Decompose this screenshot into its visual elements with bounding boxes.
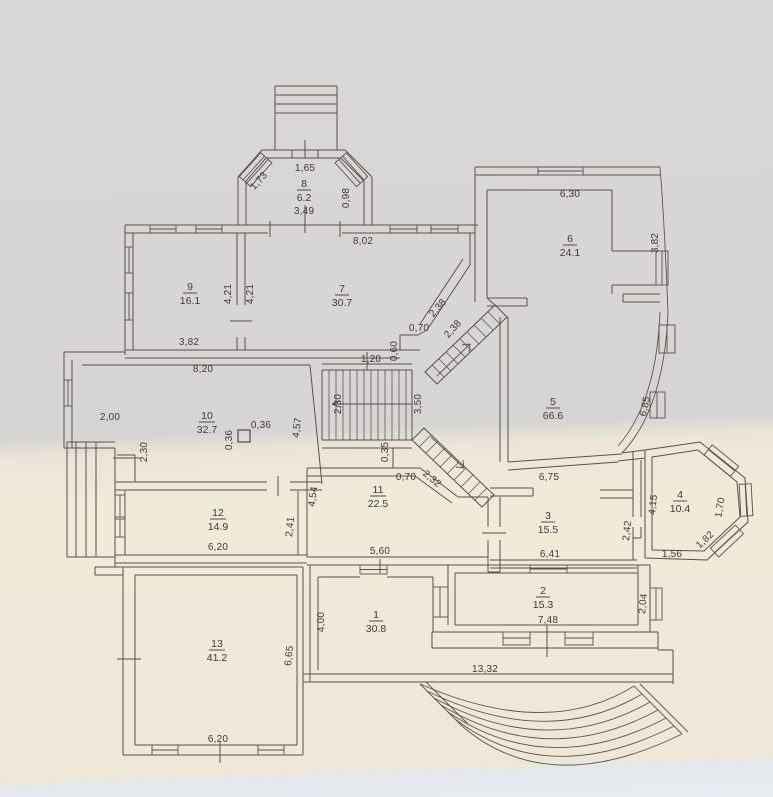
- entry-stair-walls: [275, 86, 337, 150]
- room-number: 6: [567, 233, 573, 245]
- dim-r11-left: 4,54: [307, 486, 321, 508]
- dim-r3-bottom: 6,41: [540, 549, 561, 560]
- room-area: 30.8: [366, 623, 387, 635]
- room-number: 13: [211, 638, 223, 650]
- dim-stair-w: 1,20: [361, 354, 382, 365]
- window-icon: [503, 632, 530, 645]
- room-area: 30.7: [332, 297, 353, 309]
- north-walls: [125, 221, 478, 355]
- room-area: 6.2: [297, 192, 312, 204]
- room-area: 15.3: [533, 599, 554, 611]
- room-label-8: 86.2: [297, 178, 312, 204]
- window-icon: [150, 225, 176, 233]
- room-label-7: 730.7: [332, 283, 353, 309]
- dim-r4-diag: 1,82: [694, 529, 716, 551]
- west-steps: [67, 442, 115, 557]
- column-0-36: [238, 430, 250, 442]
- window-icon: [64, 380, 72, 406]
- dim-col-h: 0,36: [224, 430, 235, 451]
- window-icon: [565, 632, 593, 645]
- room-area: 22.5: [368, 498, 389, 510]
- window-icon: [650, 392, 665, 418]
- dim-r1-left: 4,00: [316, 612, 327, 633]
- window-icon: [125, 293, 133, 320]
- room-number: 4: [677, 489, 683, 501]
- room-number: 8: [301, 178, 307, 190]
- dim-r2-bottom: 7,48: [538, 615, 559, 626]
- window-icon: [650, 588, 662, 620]
- dim-r6-top: 6,30: [560, 189, 581, 200]
- dim-r4-bottom: 1,56: [662, 549, 683, 560]
- window-icon: [538, 167, 583, 175]
- window-icon: [431, 225, 458, 233]
- dim-r12-bottom: 6,20: [208, 542, 229, 553]
- room-area: 66.6: [543, 410, 564, 422]
- room13-walls: [95, 567, 303, 763]
- dim-r4-right: 1,70: [713, 496, 727, 518]
- room-label-4: 410.4: [670, 489, 691, 515]
- dim-wall34: 2,42: [621, 520, 634, 542]
- dim-flight-c: 2,32: [420, 468, 443, 490]
- dim-stair-r: 3,50: [413, 394, 424, 415]
- dim-r7-top: 8,02: [353, 236, 374, 247]
- room-number: 10: [201, 410, 213, 422]
- room5-walls: [487, 298, 645, 470]
- dim-stair-len: 2,30: [333, 394, 344, 415]
- window-icon: [196, 225, 222, 233]
- room-label-2: 215.3: [533, 585, 554, 611]
- dim-r6-right: 3,82: [650, 233, 661, 254]
- dim-r10-left: 2,00: [100, 412, 121, 423]
- window-icon: [704, 445, 739, 476]
- room-label-6: 624.1: [560, 233, 581, 259]
- terrace-rails: [420, 682, 688, 734]
- door-threshold: [360, 565, 387, 574]
- room-area: 14.9: [208, 521, 229, 533]
- stair-direction-arrow: [332, 401, 412, 407]
- terrace-steps-group: [420, 682, 688, 765]
- door-threshold: [530, 565, 567, 573]
- window-icon: [659, 325, 675, 353]
- dim-r11-bottom: 5,60: [370, 546, 391, 557]
- dim-step-v2: 0,35: [380, 442, 391, 463]
- dim-r13-right: 6,65: [283, 645, 296, 667]
- dimension-labels-group: 1,65 1,73 0,98 3,49 8,02 6,30 3,82 4,21 …: [100, 163, 728, 745]
- dim-nook: 2,30: [139, 442, 150, 463]
- room-number: 12: [212, 507, 224, 519]
- room-area: 32.7: [197, 424, 218, 436]
- room-area: 41.2: [207, 652, 228, 664]
- scanned-floor-plan-photo: 130.8 215.3 315.5 410.4 566.6 624.1 730.…: [0, 0, 773, 797]
- dim-r9-wall-a: 4,21: [223, 284, 234, 305]
- dim-r12-right: 2,41: [284, 516, 297, 538]
- dim-terrace: 13,32: [472, 664, 498, 675]
- dim-porch-top: 1,65: [295, 163, 316, 174]
- room-area: 16.1: [180, 295, 201, 307]
- floor-plan-drawing: 130.8 215.3 315.5 410.4 566.6 624.1 730.…: [0, 0, 773, 797]
- dim-r3-top: 6,75: [539, 472, 560, 483]
- room9-walls: [64, 233, 420, 365]
- window-icon: [125, 247, 133, 273]
- dim-r10-diag: 4,57: [291, 417, 304, 439]
- window-icon: [115, 519, 125, 537]
- room-number: 9: [187, 281, 193, 293]
- upper-flight-arrow: [437, 344, 470, 376]
- dim-r10-top: 8,20: [193, 364, 214, 375]
- dim-porch-left: 1,73: [248, 170, 270, 193]
- room-label-5: 566.6: [543, 396, 564, 422]
- room-label-11: 1122.5: [368, 484, 389, 510]
- dim-flight-a: 2,38: [427, 297, 449, 320]
- dim-r4-left: 4,15: [647, 494, 660, 516]
- dim-r13-bottom: 6,20: [208, 734, 229, 745]
- room-area: 15.5: [538, 524, 559, 536]
- lower-flight-treads: [419, 435, 487, 500]
- room-label-3: 315.5: [538, 510, 559, 536]
- rooms11-12-walls: [115, 468, 506, 572]
- dim-r2-right: 2,04: [637, 593, 650, 615]
- window-icon: [335, 153, 368, 187]
- room-label-9: 916.1: [180, 281, 201, 307]
- room-number: 3: [545, 510, 551, 522]
- room-label-1: 130.8: [366, 609, 387, 635]
- dim-r9-wall-b: 4,21: [245, 284, 256, 305]
- dim-step-v: 0,60: [389, 341, 400, 362]
- room-label-12: 1214.9: [208, 507, 229, 533]
- window-icon: [115, 495, 125, 517]
- room-area: 10.4: [670, 503, 691, 515]
- room-number: 7: [339, 283, 345, 295]
- dim-col-w: 0,36: [251, 420, 272, 431]
- room-number: 1: [373, 609, 379, 621]
- window-icon: [152, 745, 178, 755]
- room-number: 2: [540, 585, 546, 597]
- dim-porch-right: 0,98: [341, 188, 352, 209]
- window-icon: [390, 225, 417, 233]
- terrace-arcs: [420, 684, 682, 765]
- dim-step-h: 0,70: [409, 323, 430, 334]
- window-icon: [433, 587, 448, 617]
- window-icon: [258, 745, 284, 755]
- room-area: 24.1: [560, 247, 581, 259]
- room-label-13: 1341.2: [207, 638, 228, 664]
- dim-r5-right: 6,85: [638, 395, 653, 417]
- room-number: 5: [550, 396, 556, 408]
- room-label-10: 1032.7: [197, 410, 218, 436]
- room-number: 11: [373, 484, 384, 496]
- dim-r9-bottom: 3,82: [179, 337, 200, 348]
- dim-porch-bottom: 3,49: [294, 206, 315, 217]
- dim-step-h2: 0,70: [396, 472, 417, 483]
